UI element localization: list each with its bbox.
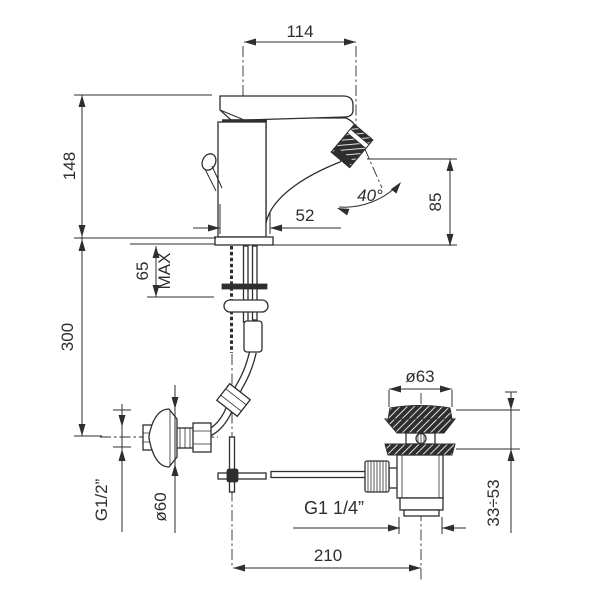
- dim-210-label: 210: [314, 546, 342, 565]
- dim-spout-reach: 114: [244, 22, 356, 46]
- wall-inlet-fitting: [143, 409, 211, 467]
- base-flange: [215, 237, 273, 245]
- dim-40deg-label: 40°: [357, 186, 383, 205]
- faucet-body: [218, 122, 266, 237]
- dim-65-label: 65: [133, 262, 152, 281]
- waste-locknut: [385, 444, 455, 455]
- arrow-left: [244, 39, 256, 46]
- dim-deck-thickness-max: 65 MAX: [133, 246, 214, 297]
- dim-aerator-angle: 40°: [336, 180, 404, 216]
- linkage-vertical-rod: [230, 437, 235, 492]
- inlet-escutcheon-flange: [149, 409, 177, 467]
- dim-g12-label: G1/2”: [92, 478, 111, 521]
- linkage-horizontal-rod-left: [218, 473, 266, 479]
- popup-linkage: [218, 437, 367, 492]
- dim-85-label: 85: [426, 193, 445, 212]
- popup-knob: [200, 152, 219, 173]
- dim-max-label: MAX: [155, 253, 174, 290]
- bidet-mixer-drawing: 114 148 300 65 MAX 52: [0, 0, 600, 600]
- faucet: [130, 96, 457, 245]
- dim-waste-offset: 210: [233, 546, 421, 572]
- mounting-stud-plate: [222, 284, 267, 289]
- popup-rod-coupling-block: [244, 321, 262, 352]
- waste-assembly: [365, 406, 455, 517]
- waste-neck: [406, 433, 435, 444]
- dim-52-label: 52: [296, 206, 315, 225]
- dim-3353-label: 33÷53: [484, 479, 503, 526]
- waste-flange-rim: [385, 419, 455, 433]
- technical-drawing-page: 114 148 300 65 MAX 52: [0, 0, 600, 600]
- lever-handle: [220, 96, 353, 120]
- dim-inlet-height: 300: [58, 238, 102, 436]
- hose-hex-nut: [217, 384, 250, 417]
- dim-waste-flange-diameter: ø63: [389, 367, 452, 407]
- waste-plug-cap: [388, 406, 452, 420]
- linkage-clamp: [227, 469, 238, 482]
- horseshoe-washer-nut: [224, 300, 268, 312]
- knurl-lines: [368, 461, 386, 492]
- waste-tailpiece: [400, 498, 443, 510]
- dim-148-label: 148: [60, 152, 79, 180]
- waste-tailpiece-thread: [404, 510, 439, 516]
- dim-114-label: 114: [286, 22, 313, 41]
- dim-clamping-range: 33÷53: [456, 392, 520, 533]
- inlet-compression-nut: [193, 423, 211, 452]
- dim-inlet-thread: G1/2”: [92, 404, 131, 532]
- dim-g114-label: G1 1/4”: [304, 498, 364, 518]
- dim-d60-label: ø60: [151, 492, 170, 521]
- linkage-horizontal-rod-right: [271, 472, 367, 478]
- dim-d63-label: ø63: [405, 367, 434, 386]
- dim-spout-height: 148: [60, 95, 216, 238]
- under-deck-assembly: [203, 246, 268, 435]
- waste-body: [397, 455, 443, 498]
- arrow-right: [344, 39, 356, 46]
- dim-300-label: 300: [58, 323, 77, 351]
